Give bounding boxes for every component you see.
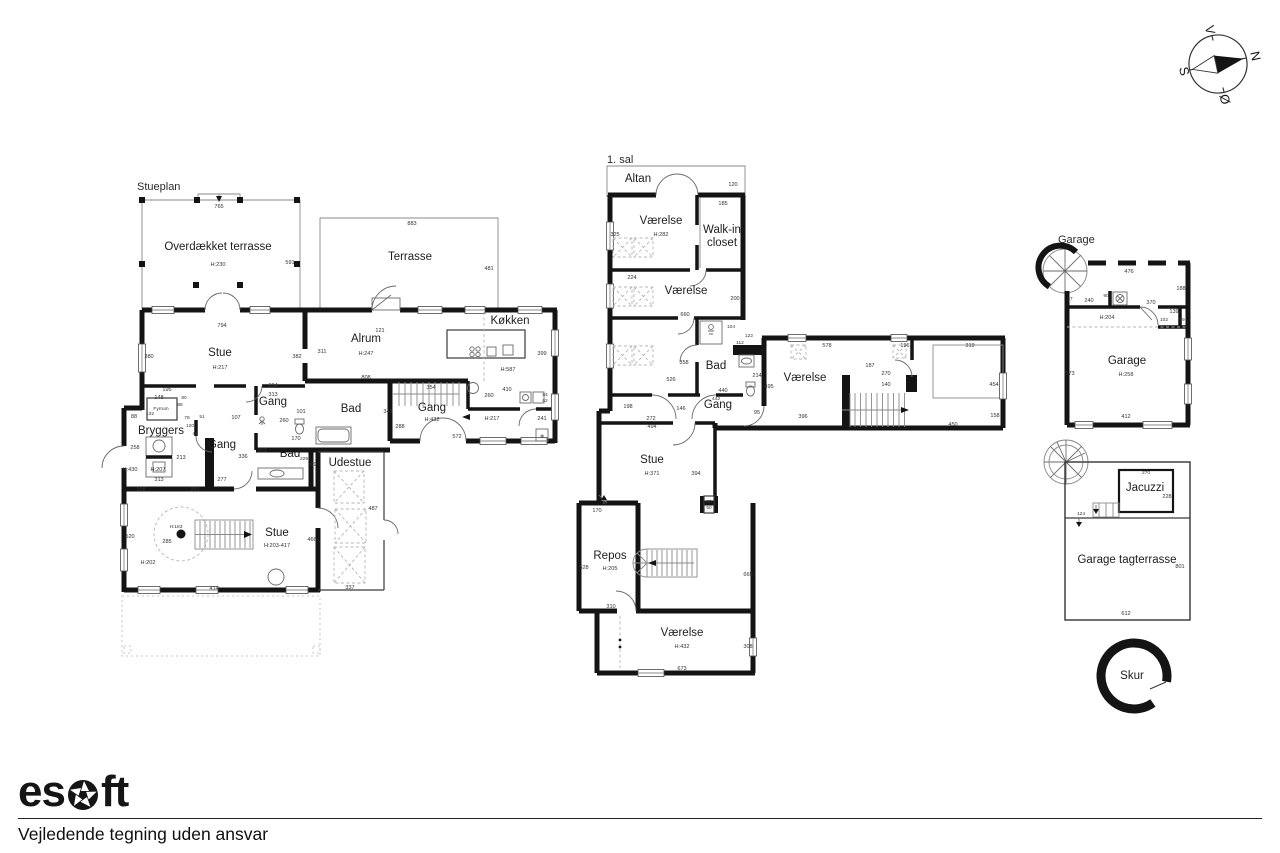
- dimension-label: 794: [217, 323, 226, 329]
- dimension-label: 341: [383, 409, 392, 415]
- dimension-label: 285: [162, 539, 171, 545]
- dimension-label: 148: [154, 395, 163, 401]
- plan-garage: Garage4761885724090370139H:20410279Garag…: [1038, 234, 1191, 429]
- shed-labels: Skur: [1120, 670, 1144, 682]
- dimension-label: 224: [627, 275, 636, 281]
- dimension-label: 95: [754, 410, 760, 416]
- room-label: Walk-in: [703, 224, 741, 236]
- compass-rose: NSØV: [1169, 16, 1272, 113]
- dimension-label: 107: [231, 415, 240, 421]
- stueplan-fixtures: [122, 312, 548, 656]
- dimension-label: H:430: [123, 467, 138, 473]
- dimension-label: 228: [1162, 494, 1171, 500]
- dimension-label: 354: [426, 385, 435, 391]
- garage-walls: [1067, 263, 1190, 425]
- room-label: Repos: [593, 550, 626, 562]
- dimension-label: 336: [238, 454, 247, 460]
- room-label: Bryggers: [138, 425, 184, 437]
- dimension-label: 440: [718, 388, 727, 394]
- dimension-label: H:432: [425, 417, 440, 423]
- room-label: Garage: [1108, 355, 1146, 367]
- dimension-label: 319: [965, 343, 974, 349]
- dimension-label: 188: [1176, 286, 1185, 292]
- roof-terrace-labels: 270Jacuzzi228124Garage tagterrasse801612: [1077, 470, 1185, 617]
- room-label: Gang: [704, 399, 732, 411]
- dimension-label: 520: [125, 534, 134, 540]
- dimension-label: H:247: [359, 351, 374, 357]
- dimension-label: H:203-417: [264, 543, 290, 549]
- dimension-label: 60: [706, 499, 712, 505]
- dimension-label: 310: [606, 604, 615, 610]
- dimension-label: 170: [592, 508, 601, 514]
- dimension-label: H:204: [1100, 315, 1115, 321]
- dimension-label: 185: [718, 201, 727, 207]
- dimension-label: H:587: [501, 367, 516, 373]
- dimension-label: 394: [691, 471, 700, 477]
- dimension-label: 241: [537, 416, 546, 422]
- compass-needle-north: [1214, 50, 1245, 73]
- dimension-label: H:282: [654, 232, 669, 238]
- dimension-label: 414: [209, 586, 218, 592]
- plan-shed: Skur: [1101, 643, 1167, 709]
- room-label: Garage: [1058, 234, 1095, 246]
- dimension-label: 801: [1175, 564, 1184, 570]
- logo-text-right: ft: [101, 770, 128, 814]
- room-label: closet: [707, 237, 738, 249]
- logo-text-left: es: [18, 770, 65, 814]
- room-label: Stue: [640, 454, 664, 466]
- dimension-label: 200: [730, 296, 739, 302]
- dimension-label: 170: [291, 436, 300, 442]
- dimension-label: 665: [743, 572, 752, 578]
- dimension-label: 380: [144, 354, 153, 360]
- dimension-label: 101: [296, 409, 305, 415]
- dimension-label: 412: [1121, 414, 1130, 420]
- dimension-label: 195: [162, 387, 171, 393]
- aperture-icon: [66, 778, 100, 812]
- dimension-label: 64: [542, 392, 548, 398]
- esoft-logo: es ft: [18, 770, 1262, 814]
- room-label: Terrasse: [388, 251, 432, 263]
- dimension-label: 122: [745, 333, 753, 339]
- dimension-label: H:217: [213, 365, 228, 371]
- room-label: Værelse: [640, 215, 683, 227]
- room-label: Værelse: [784, 372, 827, 384]
- dimension-label: 270: [881, 371, 890, 377]
- room-label: Værelse: [665, 285, 708, 297]
- dimension-label: Fyrrum: [153, 406, 168, 412]
- footer-divider: [18, 818, 1262, 819]
- dimension-label: H:258: [1119, 372, 1134, 378]
- dimension-label: 494: [647, 424, 656, 430]
- dimension-label: 495: [764, 384, 773, 390]
- room-label: Garage tagterrasse: [1077, 554, 1176, 566]
- dimension-label: 214: [752, 373, 761, 379]
- dimension-label: 612: [1121, 611, 1130, 617]
- dimension-label: V: [1202, 24, 1219, 36]
- dimension-label: 79: [1179, 317, 1185, 323]
- room-label: Overdækket terrasse: [164, 241, 271, 253]
- plan-roof-terrace: 270Jacuzzi228124Garage tagterrasse801612: [1044, 440, 1190, 620]
- room-label: Gang: [208, 439, 236, 451]
- covered-terrace-outline: [139, 194, 498, 312]
- dimension-label: 572: [452, 434, 461, 440]
- dimension-label: 765: [214, 204, 223, 210]
- dimension-label: 573: [1065, 371, 1074, 377]
- dimension-label: 158: [990, 413, 999, 419]
- room-label: Stue: [265, 527, 289, 539]
- dimension-label: H:183: [170, 524, 183, 530]
- dimension-label: S: [1176, 65, 1193, 77]
- dimension-label: 370: [1146, 300, 1155, 306]
- dimension-label: 303: [257, 448, 266, 454]
- dimension-label: 578: [822, 343, 831, 349]
- dimension-label: 311: [318, 349, 327, 355]
- dimension-label: 313: [154, 477, 163, 483]
- dimension-label: 88: [131, 414, 137, 420]
- dimension-label: N: [1247, 50, 1264, 62]
- dimension-label: 277: [217, 477, 226, 483]
- dimension-label: 396: [798, 414, 807, 420]
- room-label: Bad: [341, 403, 361, 415]
- firstfloor-labels: 1. salAltan120185VærelseH:282325Walk-inc…: [579, 154, 999, 672]
- dimension-label: 660: [680, 312, 689, 318]
- dimension-label: 109: [307, 462, 316, 468]
- disclaimer-text: Vejledende tegning uden ansvar: [18, 824, 1262, 845]
- dimension-label: 466: [307, 537, 316, 543]
- dimension-label: H:432: [675, 644, 690, 650]
- dimension-label: 62: [542, 398, 548, 404]
- dimension-label: 198: [623, 404, 632, 410]
- dimension-label: 132: [146, 411, 154, 417]
- dimension-label: 44: [192, 431, 198, 437]
- dimension-label: 80: [181, 395, 187, 401]
- room-label: Køkken: [491, 315, 530, 327]
- dimension-label: 140: [881, 382, 890, 388]
- dimension-label: 120: [186, 423, 194, 429]
- room-label: Skur: [1120, 670, 1144, 682]
- dimension-label: 213: [176, 455, 185, 461]
- dimension-label: 112: [736, 340, 744, 346]
- dimension-label: 325: [610, 232, 619, 238]
- dimension-label: 291: [190, 487, 199, 493]
- dimension-label: 308: [743, 644, 752, 650]
- room-label: Stue: [208, 347, 232, 359]
- room-label: Værelse: [661, 627, 704, 639]
- dimension-label: 382: [292, 354, 301, 360]
- room-label: Bad: [280, 448, 300, 460]
- floorplan-page: Stueplan765Overdækket terrasseH:230591Te…: [0, 0, 1280, 853]
- dimension-label: 481: [484, 266, 493, 272]
- dimension-label: 358: [679, 360, 688, 366]
- dimension-label: 410: [502, 387, 511, 393]
- compass-needle-south: [1191, 56, 1218, 79]
- room-label: 1. sal: [607, 154, 633, 166]
- room-label: Gang: [418, 402, 446, 414]
- garage-windows: [1075, 338, 1192, 429]
- plan-first-floor: 1. salAltan120185VærelseH:282325Walk-inc…: [579, 154, 1007, 677]
- dimension-label: 158: [136, 487, 145, 493]
- garage-spiral-stair: [1038, 246, 1087, 293]
- dimension-label: 272: [646, 416, 655, 422]
- dimension-label: 50: [706, 505, 712, 511]
- dimension-label: 337: [345, 585, 354, 591]
- dimension-label: ❄: [540, 434, 544, 440]
- dimension-label: H:217: [485, 416, 500, 422]
- dimension-label: 90: [1103, 293, 1109, 299]
- room-label: Stueplan: [137, 181, 180, 193]
- dimension-label: H:202: [141, 560, 156, 566]
- dimension-label: 240: [1084, 298, 1093, 304]
- dimension-label: H:207: [151, 467, 166, 473]
- dimension-label: H:371: [645, 471, 660, 477]
- dimension-label: 258: [130, 445, 139, 451]
- dimension-label: 399: [537, 351, 546, 357]
- dimension-label: 260: [279, 418, 288, 424]
- dimension-label: Ø: [1217, 93, 1234, 106]
- room-label: Bad: [706, 360, 726, 372]
- dimension-label: 270: [1142, 470, 1150, 476]
- dimension-label: 288: [395, 424, 404, 430]
- dimension-label: 450: [948, 422, 957, 428]
- dimension-label: 88: [177, 402, 183, 408]
- dimension-label: 454: [989, 382, 998, 388]
- floorplan-drawing: Stueplan765Overdækket terrasseH:230591Te…: [0, 0, 1280, 853]
- room-label: Jacuzzi: [1126, 482, 1164, 494]
- stueplan-walls: [124, 310, 557, 592]
- dimension-label: 146: [676, 406, 685, 412]
- firstfloor-walls: [579, 166, 1005, 673]
- dimension-label: 104: [727, 324, 735, 330]
- dimension-label: 526: [666, 377, 675, 383]
- dimension-label: H:230: [211, 262, 226, 268]
- dimension-label: 187: [865, 363, 874, 369]
- dimension-label: 487: [368, 506, 377, 512]
- dimension-label: 528: [579, 565, 588, 571]
- dimension-label: 57: [1067, 296, 1073, 302]
- dimension-label: 808: [361, 375, 370, 381]
- room-label: Alrum: [351, 333, 381, 345]
- room-label: Gang: [259, 396, 287, 408]
- dimension-label: 78: [184, 415, 190, 421]
- dimension-label: 883: [407, 221, 416, 227]
- dimension-label: 196: [900, 343, 909, 349]
- dimension-label: 139: [1169, 309, 1178, 315]
- plan-stueplan: Stueplan765Overdækket terrasseH:230591Te…: [102, 181, 559, 656]
- dimension-label: 673: [677, 666, 686, 672]
- dimension-label: 304: [268, 383, 277, 389]
- dimension-label: 51: [199, 414, 205, 420]
- dimension-label: 102: [1160, 317, 1168, 323]
- dimension-label: 260: [484, 393, 493, 399]
- dimension-label: 124: [1077, 511, 1085, 517]
- room-label: Udestue: [329, 457, 372, 469]
- room-label: Altan: [625, 173, 651, 185]
- dimension-label: 591: [285, 260, 294, 266]
- dimension-label: 476: [1124, 269, 1133, 275]
- footer: es ft Vejledende tegning uden ansvar: [18, 770, 1262, 845]
- dimension-label: 120: [728, 182, 737, 188]
- dimension-label: H:205: [603, 566, 618, 572]
